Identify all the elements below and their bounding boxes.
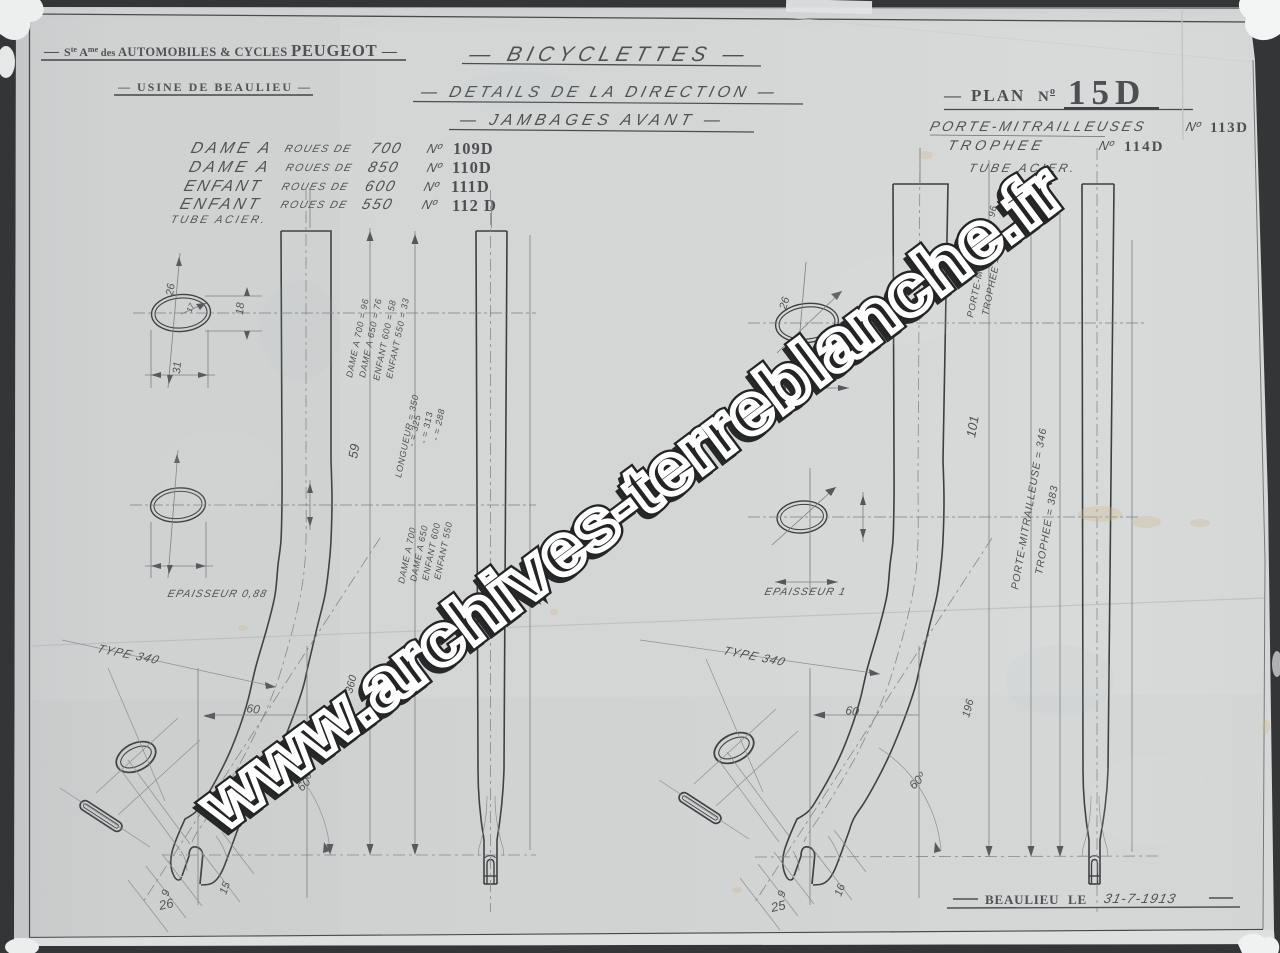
svg-text:N: N (1038, 89, 1049, 105)
svg-text:114D: 114D (1124, 139, 1165, 155)
svg-text:59: 59 (345, 443, 362, 460)
svg-text:—: — (381, 44, 398, 60)
svg-text:—: — (943, 86, 962, 105)
svg-text:850: 850 (366, 159, 402, 176)
svg-text:111D: 111D (451, 177, 490, 196)
svg-text:PORTE-MITRAILLEUSES: PORTE-MITRAILLEUSES (928, 119, 1148, 135)
svg-text:— BICYCLETTES —: — BICYCLETTES — (466, 42, 752, 66)
svg-text:— JAMBAGES AVANT —: — JAMBAGES AVANT — (457, 111, 727, 129)
svg-text:550: 550 (360, 196, 396, 213)
svg-text:109D: 109D (453, 139, 494, 158)
svg-text:113D: 113D (1210, 120, 1249, 136)
svg-text:110D: 110D (452, 158, 492, 177)
svg-text:o: o (1050, 86, 1055, 97)
svg-text:EPAISSEUR 1: EPAISSEUR 1 (763, 586, 847, 598)
svg-text:700: 700 (369, 140, 405, 157)
svg-text:600: 600 (363, 178, 399, 195)
svg-text:15D: 15D (1068, 73, 1146, 112)
svg-text:PLAN: PLAN (971, 86, 1025, 105)
